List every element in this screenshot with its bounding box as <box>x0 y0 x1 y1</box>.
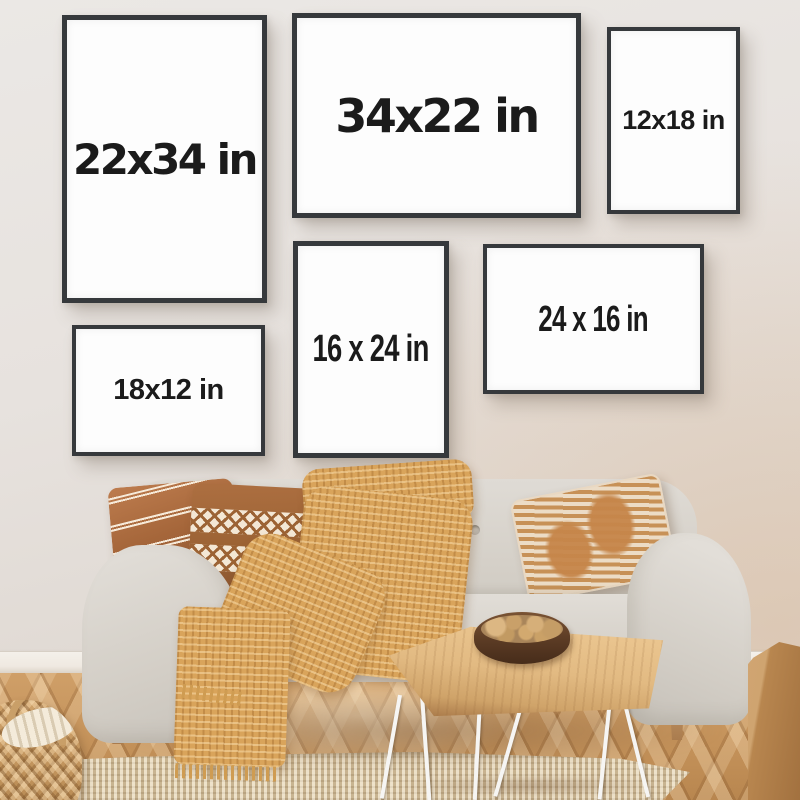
poster-frame-34x22: 34x22 in <box>292 13 581 218</box>
frame-size-label: 12x18 in <box>622 105 725 136</box>
living-room-scene: 22x34 in 34x22 in 12x18 in 16 x 24 in 24… <box>0 0 800 800</box>
wicker-basket <box>0 700 82 800</box>
frame-size-label: 24 x 16 in <box>539 298 649 340</box>
poster-frame-12x18: 12x18 in <box>607 27 740 214</box>
frame-size-label: 34x22 in <box>335 89 537 143</box>
poster-frame-16x24: 16 x 24 in <box>293 241 449 458</box>
table-floor-shadow <box>395 775 665 797</box>
bowl-contents-nuts <box>481 615 564 643</box>
poster-frame-22x34: 22x34 in <box>62 15 267 303</box>
nut-bowl <box>474 612 570 664</box>
poster-frame-18x12: 18x12 in <box>72 325 265 456</box>
wood-block-stool <box>748 642 800 800</box>
frame-size-label: 22x34 in <box>73 135 256 184</box>
frame-size-label: 16 x 24 in <box>313 328 429 371</box>
poster-frame-24x16: 24 x 16 in <box>483 244 704 394</box>
frame-size-label: 18x12 in <box>113 374 223 407</box>
